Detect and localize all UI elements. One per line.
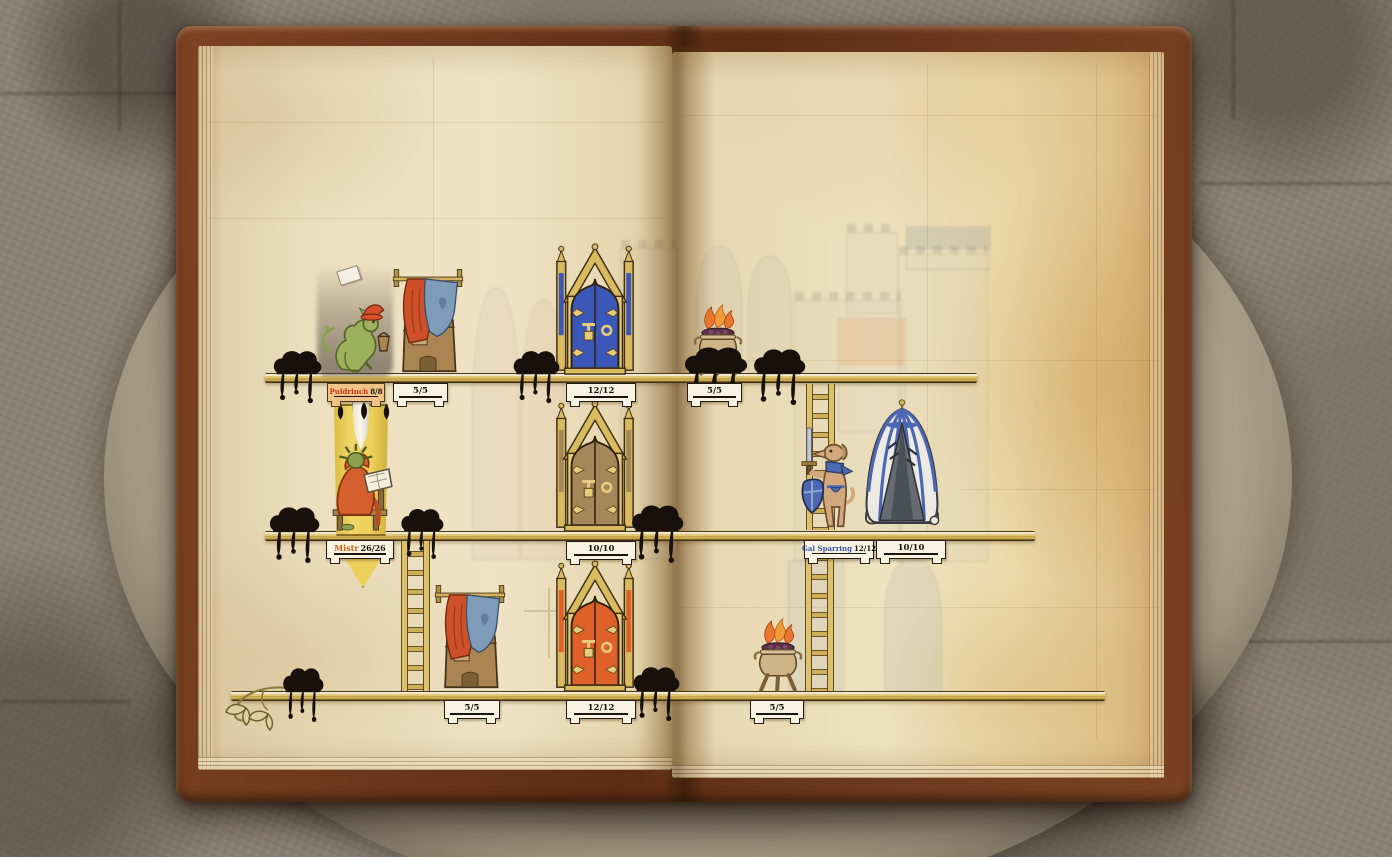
hp-label: 5/5 [444,700,500,719]
faded-turret [846,232,898,314]
label-rule [334,396,379,398]
ruling-line [680,115,1158,116]
unit-hp: 5/5 [770,704,785,713]
unit-name-hp-label: Mistr26/26 [326,540,394,559]
ink-blot [398,506,444,560]
ladder-middle-left [401,541,430,691]
unit-name-hp-label: Puldrinch8/8 [327,383,385,402]
hp-label: 10/10 [876,540,946,559]
ink-blot [630,664,680,722]
gothic-door-blue-sprite[interactable] [551,240,639,376]
unit-hp: 5/5 [413,387,428,396]
unit-hp: 5/5 [465,704,480,713]
ruling-line [205,122,667,123]
label-rule [756,713,798,715]
knight-gal-sparring-sprite[interactable] [799,426,857,532]
stone-joint [0,700,130,703]
stone-joint [1200,182,1392,185]
gothic-door-brown-sprite[interactable] [551,397,639,533]
master-sprite[interactable] [325,440,397,532]
ruling-line [960,489,1158,490]
ink-blot [628,502,684,564]
unit-hp: 5/5 [707,387,722,396]
ink-blot [270,348,322,404]
hp-label: 12/12 [566,383,636,402]
gothic-door-orange-sprite[interactable] [551,557,639,693]
label-rule [334,553,387,555]
faded-blue-column [884,558,942,692]
tent-sprite[interactable] [851,398,953,533]
unit-hp: 10/10 [588,545,615,554]
ladder-bottom-right [805,545,834,691]
label-rule [812,553,866,555]
hp-label: 5/5 [687,383,742,402]
ruling-line [205,218,667,219]
unit-hp: 8/8 [370,388,382,395]
hp-label: 10/10 [566,541,636,560]
ink-blot [510,348,560,404]
hp-label: 12/12 [566,700,636,719]
unit-name: Mistr [334,544,358,552]
label-rule [574,713,628,715]
faded-blue-roof-house [906,226,990,270]
wardrobe-sprite[interactable] [430,578,510,691]
unit-hp: 12/12 [854,545,876,552]
label-rule [574,396,628,398]
faded-tower-drawing [472,288,520,560]
unit-name-hp-label: Gal Sparring12/12 [804,540,874,559]
wardrobe-sprite[interactable] [388,262,468,375]
stone-joint [1230,640,1392,643]
hp-label: 5/5 [750,700,804,719]
unit-hp: 12/12 [588,704,615,713]
label-rule [574,554,628,556]
unit-hp: 26/26 [361,544,386,552]
ink-blot [750,346,806,406]
label-rule [450,713,493,715]
hp-label: 5/5 [393,383,448,402]
stone-joint [118,0,121,130]
ink-blot [280,665,324,723]
ink-blot [266,504,320,564]
stone-joint [0,92,180,95]
unit-name: Gal Sparring [802,545,852,552]
ruling-line [1096,65,1097,740]
cauldron-sprite[interactable] [750,618,806,692]
unit-hp: 12/12 [588,387,615,396]
stone-joint [1232,0,1235,120]
unit-hp: 10/10 [898,544,925,553]
ink-drip-icon [382,404,391,420]
ink-drip-icon [359,402,369,420]
label-rule [399,396,441,398]
game-stage: Puldrinch8/8 5/5 12/12 5/5 Mistr26/26 10… [0,0,1392,857]
beast-puldrinch-sprite[interactable] [318,292,392,374]
unit-name: Puldrinch [329,388,368,395]
label-rule [884,553,938,555]
label-rule [693,396,735,398]
